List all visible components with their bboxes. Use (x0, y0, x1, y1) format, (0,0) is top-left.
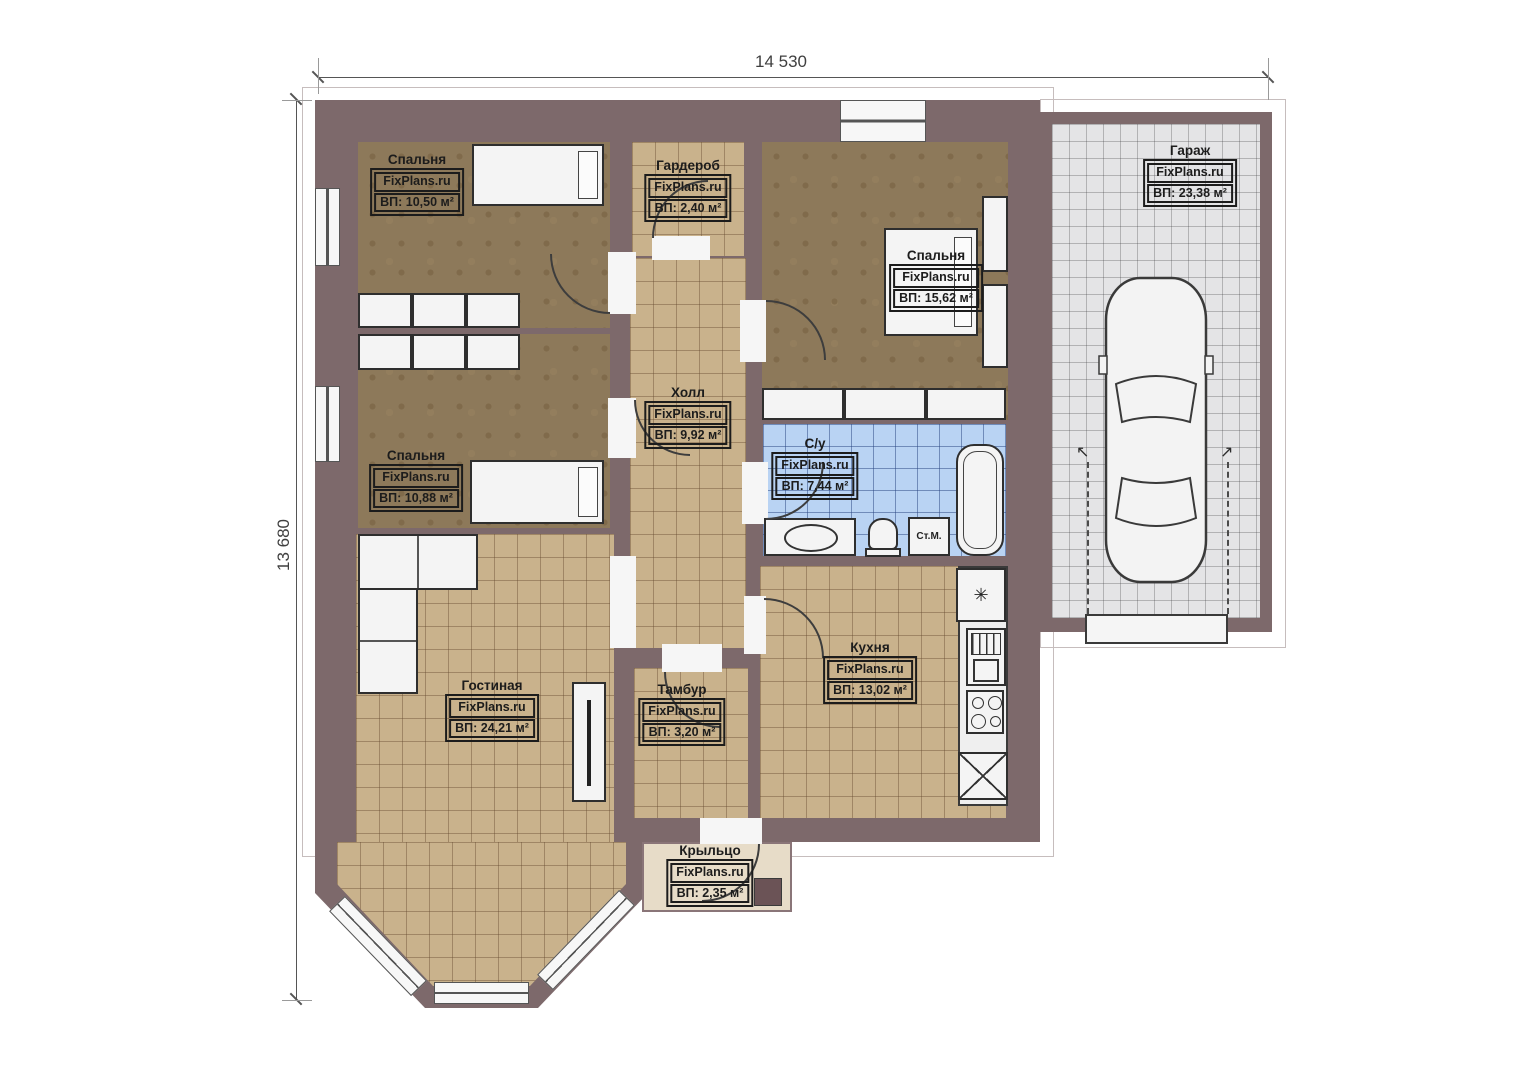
extension-line (282, 1000, 312, 1001)
window-bedroom-3 (315, 386, 340, 462)
wardrobe-cell (358, 293, 412, 328)
room-name: Спальня (889, 248, 983, 263)
room-label-wardrobe: Гардероб FixPlans.ru ВП: 2,40 м² (644, 158, 731, 222)
burner (988, 696, 1002, 710)
label-boxes: FixPlans.ru ВП: 2,35 м² (666, 859, 753, 907)
label-boxes: FixPlans.ru ВП: 24,21 м² (445, 694, 539, 742)
bay-window-center (434, 982, 529, 1004)
stove (966, 690, 1004, 734)
watermark: FixPlans.ru (642, 702, 721, 722)
bed-bedroom-3 (470, 460, 604, 524)
extension-line (318, 58, 319, 94)
label-boxes: FixPlans.ru ВП: 13,02 м² (823, 656, 917, 704)
wardrobe-cell (466, 293, 520, 328)
washing-machine-label: Ст.М. (916, 531, 941, 542)
dimension-label-top: 14 530 (755, 52, 807, 72)
door-opening-bathroom (742, 462, 768, 524)
door-opening-kitchen (744, 596, 766, 654)
fridge-snowflake-icon: ✳ (973, 585, 988, 606)
opening-hall-living (610, 556, 636, 648)
door-opening-wardrobe (652, 236, 710, 260)
watermark: FixPlans.ru (775, 456, 854, 476)
watermark: FixPlans.ru (449, 698, 535, 718)
watermark: FixPlans.ru (670, 863, 749, 883)
label-boxes: FixPlans.ru ВП: 7,44 м² (771, 452, 858, 500)
door-opening-vestibule (662, 644, 722, 672)
vanity (764, 518, 856, 556)
porch-post (754, 878, 782, 906)
door-opening-bedroom-2 (740, 300, 766, 362)
room-name: Кухня (823, 640, 917, 655)
washing-machine: Ст.М. (908, 517, 950, 556)
burner (972, 697, 984, 709)
garage-door (1085, 614, 1228, 644)
room-label-porch: Крыльцо FixPlans.ru ВП: 2,35 м² (666, 843, 753, 907)
closet-cell (926, 388, 1006, 420)
garage-door-swing-line (1227, 462, 1229, 614)
swing-arrow-icon: ↖ (1076, 442, 1089, 462)
watermark: FixPlans.ru (893, 268, 979, 288)
label-boxes: FixPlans.ru ВП: 9,92 м² (644, 401, 731, 449)
watermark: FixPlans.ru (827, 660, 913, 680)
dimension-line-left (296, 100, 297, 1000)
room-label-bedroom-3: Спальня FixPlans.ru ВП: 10,88 м² (369, 448, 463, 512)
extension-line (282, 100, 312, 101)
room-label-hall: Холл FixPlans.ru ВП: 9,92 м² (644, 385, 731, 449)
bathtub (956, 444, 1004, 556)
toilet-tank (865, 548, 901, 557)
room-name: Крыльцо (666, 843, 753, 858)
toilet (868, 518, 898, 550)
wardrobe-cell (358, 334, 412, 370)
kitchen-sink (966, 628, 1006, 686)
room-area: ВП: 9,92 м² (648, 426, 727, 446)
car-top-view (1098, 272, 1214, 588)
sink-drainer (971, 633, 1001, 655)
sofa-vertical (358, 588, 418, 694)
room-name: Гостиная (445, 678, 539, 693)
room-area: ВП: 10,88 м² (373, 489, 459, 509)
swing-arrow-icon: ↗ (1220, 442, 1233, 462)
label-boxes: FixPlans.ru ВП: 10,50 м² (370, 168, 464, 216)
nightstand (982, 196, 1008, 272)
label-boxes: FixPlans.ru ВП: 15,62 м² (889, 264, 983, 312)
wardrobe-cell (466, 334, 520, 370)
wardrobe-cell (412, 293, 466, 328)
corner-cabinet (958, 752, 1008, 800)
floor-plan: Ст.М. ✳ ↖ ↗ Спальня (0, 0, 1528, 1080)
window-top (840, 100, 926, 142)
bathtub-inner (963, 451, 997, 549)
label-boxes: FixPlans.ru ВП: 3,20 м² (638, 698, 725, 746)
room-name: С/у (771, 436, 858, 451)
tv-stand (572, 682, 606, 802)
room-label-garage: Гараж FixPlans.ru ВП: 23,38 м² (1143, 143, 1237, 207)
watermark: FixPlans.ru (648, 178, 727, 198)
room-area: ВП: 2,35 м² (670, 884, 749, 904)
room-label-kitchen: Кухня FixPlans.ru ВП: 13,02 м² (823, 640, 917, 704)
label-boxes: FixPlans.ru ВП: 2,40 м² (644, 174, 731, 222)
burner (990, 716, 1001, 727)
room-area: ВП: 15,62 м² (893, 289, 979, 309)
label-boxes: FixPlans.ru ВП: 10,88 м² (369, 464, 463, 512)
watermark: FixPlans.ru (648, 405, 727, 425)
door-opening-entrance (700, 818, 762, 844)
room-name: Холл (644, 385, 731, 400)
fridge: ✳ (956, 568, 1006, 622)
pillow (578, 467, 598, 517)
watermark: FixPlans.ru (374, 172, 460, 192)
room-name: Гараж (1143, 143, 1237, 158)
door-opening-bedroom-3 (608, 398, 636, 458)
room-area: ВП: 3,20 м² (642, 723, 721, 743)
sink-bowl (973, 659, 999, 682)
closet-cell (844, 388, 926, 420)
room-label-vestibule: Тамбур FixPlans.ru ВП: 3,20 м² (638, 682, 725, 746)
room-name: Тамбур (638, 682, 725, 697)
tv (587, 700, 591, 786)
sofa-horizontal (358, 534, 478, 590)
nightstand (982, 284, 1008, 368)
room-area: ВП: 2,40 м² (648, 199, 727, 219)
room-area: ВП: 23,38 м² (1147, 184, 1233, 204)
room-label-bedroom-2: Спальня FixPlans.ru ВП: 15,62 м² (889, 248, 983, 312)
room-name: Гардероб (644, 158, 731, 173)
sink-basin (784, 524, 838, 552)
bed-bedroom-1 (472, 144, 604, 206)
dimension-line-top (318, 77, 1268, 78)
room-area: ВП: 7,44 м² (775, 477, 854, 497)
room-area: ВП: 24,21 м² (449, 719, 535, 739)
window-bedroom-1 (315, 188, 340, 266)
watermark: FixPlans.ru (373, 468, 459, 488)
room-area: ВП: 10,50 м² (374, 193, 460, 213)
room-label-bathroom: С/у FixPlans.ru ВП: 7,44 м² (771, 436, 858, 500)
closet-cell (762, 388, 844, 420)
wardrobe-cell (412, 334, 466, 370)
dimension-label-left: 13 680 (274, 519, 294, 571)
door-opening-bedroom-1 (608, 252, 636, 314)
room-name: Спальня (369, 448, 463, 463)
watermark: FixPlans.ru (1147, 163, 1233, 183)
pillow (578, 151, 598, 199)
room-area: ВП: 13,02 м² (827, 681, 913, 701)
garage-door-swing-line (1087, 462, 1089, 614)
room-label-living-room: Гостиная FixPlans.ru ВП: 24,21 м² (445, 678, 539, 742)
room-label-bedroom-1: Спальня FixPlans.ru ВП: 10,50 м² (370, 152, 464, 216)
burner (971, 714, 986, 729)
room-name: Спальня (370, 152, 464, 167)
extension-line (1268, 58, 1269, 100)
label-boxes: FixPlans.ru ВП: 23,38 м² (1143, 159, 1237, 207)
